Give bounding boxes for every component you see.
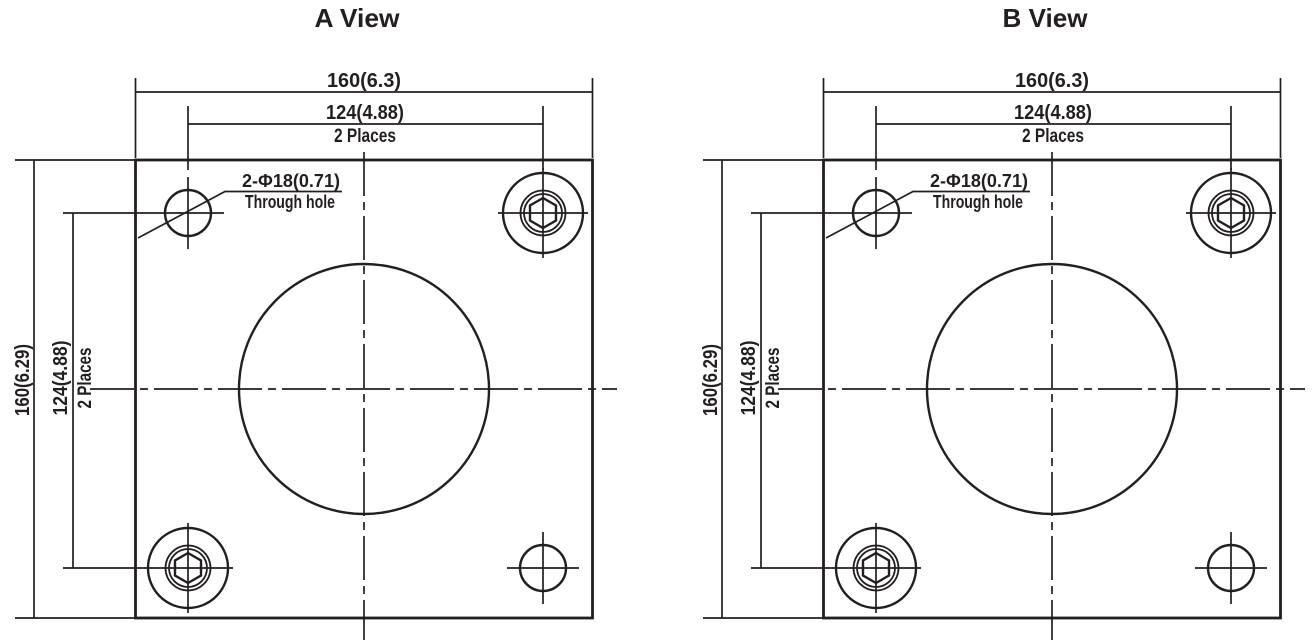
dim-places-h-label: 2 Places: [1022, 126, 1084, 147]
hole-callout: 2-Φ18(0.71) Through hole: [138, 171, 342, 238]
hole-crosshair: [498, 168, 588, 258]
hole-crosshair: [840, 177, 912, 249]
view-a-title: A View: [315, 3, 401, 33]
hole-top-left-through: [840, 177, 912, 249]
dim-hole-spacing-v-label: 124(4.88): [738, 341, 760, 416]
flange-drawing-svg: A View 160(6.3): [0, 0, 1313, 642]
dim-hole-spacing-h-label: 124(4.88): [326, 102, 404, 124]
dim-overall-width-label: 160(6.3): [1015, 70, 1089, 92]
hole-callout-diameter-label: 2-Φ18(0.71): [242, 171, 340, 191]
dim-places-h-label: 2 Places: [334, 126, 396, 147]
hole-top-right-socket-screw: [1186, 168, 1276, 258]
view-b: B View 160(6.3): [700, 3, 1305, 640]
hole-bottom-left-socket-screw: [143, 523, 233, 613]
hole-crosshair: [1195, 532, 1267, 604]
hole-bottom-right-through: [507, 532, 579, 604]
dim-places-v-label: 2 Places: [75, 348, 96, 409]
hole-crosshair: [1186, 168, 1276, 258]
hole-crosshair: [143, 523, 233, 613]
dim-hole-spacing-v-label: 124(4.88): [50, 341, 72, 416]
hole-crosshair: [831, 523, 921, 613]
hole-top-right-socket-screw: [498, 168, 588, 258]
hole-callout-diameter-label: 2-Φ18(0.71): [930, 171, 1028, 191]
dim-hole-spacing-h-label: 124(4.88): [1014, 102, 1092, 124]
hole-top-left-through: [152, 177, 224, 249]
dim-places-v-label: 2 Places: [763, 348, 784, 409]
dim-overall-height-label: 160(6.29): [700, 344, 722, 416]
hole-callout-type-label: Through hole: [245, 192, 335, 212]
drawing-canvas: A View 160(6.3): [0, 0, 1313, 642]
dim-overall-height-label: 160(6.29): [12, 344, 34, 416]
hole-bottom-left-socket-screw: [831, 523, 921, 613]
hole-callout-type-label: Through hole: [933, 192, 1023, 212]
hole-callout: 2-Φ18(0.71) Through hole: [826, 171, 1030, 238]
dim-overall-width-label: 160(6.3): [327, 70, 401, 92]
hole-bottom-right-through: [1195, 532, 1267, 604]
view-b-title: B View: [1003, 3, 1089, 33]
hole-crosshair: [507, 532, 579, 604]
hole-crosshair: [152, 177, 224, 249]
view-a: A View 160(6.3): [12, 3, 617, 640]
